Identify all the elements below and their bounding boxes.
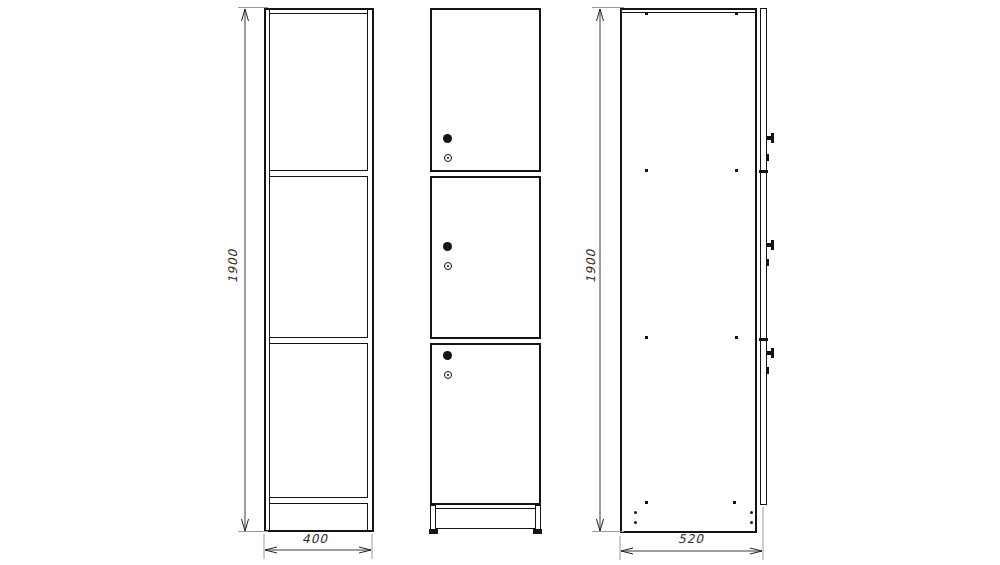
screw-dot [634, 511, 637, 514]
screw-dot [750, 511, 753, 514]
top-board-bottom-edge [270, 13, 368, 14]
side-knob-middle-cap-icon [771, 240, 774, 250]
screw-dot [735, 12, 738, 15]
dim-side-height: 1900 [583, 244, 599, 288]
screw-dot [645, 501, 648, 504]
dim-front-width: 400 [293, 531, 337, 547]
side-lock-top-icon [766, 154, 769, 161]
dim-front-height: 1900 [225, 244, 241, 288]
side-panel-outline [620, 8, 757, 533]
side-knob-top-cap-icon [771, 133, 774, 143]
bottom-board [270, 497, 368, 504]
door-middle-knob-icon [443, 242, 452, 251]
door-gap-tick-upper [759, 170, 768, 173]
plinth-foot-left [429, 529, 438, 534]
door-middle-lock-icon [444, 262, 452, 270]
side-knob-bottom-cap-icon [771, 348, 774, 358]
door-gap-tick-lower [759, 338, 768, 341]
dim-side-depth: 520 [669, 531, 713, 547]
shelf-lower [270, 337, 368, 344]
left-side-panel-inner-edge [269, 10, 270, 530]
shelf-upper [270, 170, 368, 177]
screw-dot [735, 169, 738, 172]
right-side-panel-inner-edge [367, 10, 368, 530]
side-lock-middle-icon [766, 259, 769, 266]
door-bottom-knob-icon [443, 351, 452, 360]
screw-dot [645, 12, 648, 15]
door-bottom [430, 343, 541, 505]
plinth-front-panel [435, 508, 536, 529]
screw-dot [645, 336, 648, 339]
carcass-outline [264, 8, 374, 532]
view-front-doors [430, 8, 541, 535]
door-edge-strip [760, 8, 767, 505]
screw-dot [733, 501, 736, 504]
door-bottom-lock-icon [444, 371, 452, 379]
view-side [620, 8, 780, 535]
screw-dot [634, 521, 637, 524]
view-front-carcass [264, 8, 374, 532]
door-top [430, 8, 541, 172]
plinth-foot-right [533, 529, 542, 534]
cad-drawing-canvas: 1900 400 1900 520 [0, 0, 1000, 565]
screw-dot [735, 336, 738, 339]
side-lock-bottom-icon [766, 367, 769, 374]
door-middle [430, 176, 541, 339]
screw-dot [750, 521, 753, 524]
door-top-knob-icon [443, 134, 452, 143]
door-top-lock-icon [444, 154, 452, 162]
screw-dot [645, 169, 648, 172]
